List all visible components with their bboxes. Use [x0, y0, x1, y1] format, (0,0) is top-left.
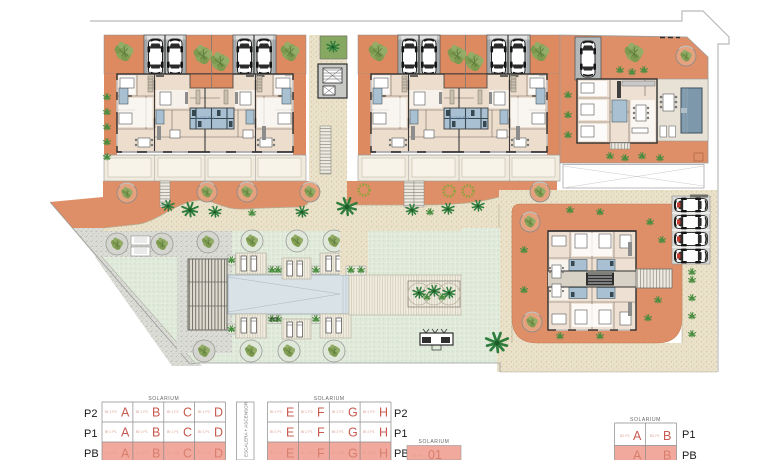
svg-text:Bf 2 P1: Bf 2 P1 [301, 430, 313, 434]
svg-text:B: B [152, 406, 160, 420]
svg-text:G: G [348, 406, 358, 420]
svg-text:ESCALERA + ASCENSOR: ESCALERA + ASCENSOR [244, 401, 249, 457]
svg-text:SOLARIUM: SOLARIUM [419, 439, 450, 445]
svg-text:G: G [348, 447, 358, 460]
svg-text:Bf 1 PB: Bf 1 PB [167, 451, 180, 455]
svg-text:Bf 1 P2: Bf 1 P2 [198, 410, 210, 414]
svg-text:SOLARIUM: SOLARIUM [314, 396, 345, 402]
svg-text:P1: P1 [84, 428, 97, 440]
svg-text:A: A [633, 429, 642, 443]
svg-text:BLOQUE 2: BLOQUE 2 [449, 115, 470, 120]
svg-text:SOLARIUM: SOLARIUM [148, 396, 179, 402]
svg-text:Bf 1 P1: Bf 1 P1 [167, 430, 179, 434]
svg-text:B3 PB: B3 PB [412, 454, 423, 458]
svg-text:F: F [317, 447, 325, 460]
svg-text:PB: PB [394, 448, 409, 460]
svg-text:P2: P2 [394, 408, 407, 420]
svg-text:B2 P1: B2 P1 [650, 434, 660, 438]
svg-text:A: A [121, 447, 130, 460]
svg-text:Bf 2 PB: Bf 2 PB [301, 451, 314, 455]
svg-text:D: D [214, 426, 223, 440]
svg-text:Bf 1 P2: Bf 1 P2 [167, 410, 179, 414]
svg-text:F: F [317, 406, 325, 420]
svg-text:Bf 2 PB: Bf 2 PB [270, 451, 283, 455]
svg-text:E: E [286, 426, 294, 440]
svg-text:B: B [663, 449, 671, 460]
svg-text:P2: P2 [84, 408, 97, 420]
svg-text:Bf 2 PB: Bf 2 PB [332, 451, 345, 455]
svg-text:E: E [286, 406, 294, 420]
svg-text:E: E [286, 447, 294, 460]
svg-text:P1: P1 [394, 428, 407, 440]
svg-text:Bf 1 P2: Bf 1 P2 [136, 410, 148, 414]
svg-text:A: A [121, 406, 130, 420]
svg-text:G: G [348, 426, 358, 440]
svg-text:D: D [214, 406, 223, 420]
svg-text:Bf 2 P1: Bf 2 P1 [270, 430, 282, 434]
svg-text:Bf 1 P2: Bf 1 P2 [105, 410, 117, 414]
svg-text:Bf 1 P1: Bf 1 P1 [136, 430, 148, 434]
svg-text:Bf 2 P1: Bf 2 P1 [332, 430, 344, 434]
svg-text:Bf 1 PB: Bf 1 PB [198, 451, 211, 455]
svg-text:Bf 1 PB: Bf 1 PB [136, 451, 149, 455]
svg-text:Bf 2 P2: Bf 2 P2 [363, 410, 375, 414]
svg-text:Bf 2 PB: Bf 2 PB [363, 451, 376, 455]
svg-text:Bf 2 P2: Bf 2 P2 [270, 410, 282, 414]
svg-text:P1: P1 [682, 429, 695, 441]
svg-text:Bf 2 P1: Bf 2 P1 [363, 430, 375, 434]
svg-text:SOLARIUM: SOLARIUM [630, 417, 661, 423]
svg-text:H: H [379, 447, 388, 460]
svg-text:Bf 1 P1: Bf 1 P1 [198, 430, 210, 434]
svg-text:Bf 1 P1: Bf 1 P1 [105, 430, 117, 434]
svg-text:C: C [183, 426, 192, 440]
svg-text:BLOQUE 1: BLOQUE 1 [195, 115, 216, 120]
svg-text:Bf 2 P2: Bf 2 P2 [301, 410, 313, 414]
svg-text:B: B [152, 447, 160, 460]
svg-text:A: A [633, 449, 642, 460]
svg-text:01: 01 [428, 448, 442, 460]
svg-text:C: C [183, 447, 192, 460]
svg-text:H: H [379, 406, 388, 420]
svg-text:H: H [379, 426, 388, 440]
svg-text:B: B [152, 426, 160, 440]
svg-text:PB: PB [682, 450, 697, 460]
svg-text:F: F [317, 426, 325, 440]
svg-text:A: A [121, 426, 130, 440]
svg-text:Bf 1 PB: Bf 1 PB [105, 451, 118, 455]
svg-text:PB: PB [84, 448, 99, 460]
svg-text:D: D [214, 447, 223, 460]
svg-text:B2 P1: B2 P1 [620, 434, 630, 438]
svg-text:C: C [183, 406, 192, 420]
svg-text:B: B [663, 429, 671, 443]
svg-text:Bf 2 P2: Bf 2 P2 [332, 410, 344, 414]
